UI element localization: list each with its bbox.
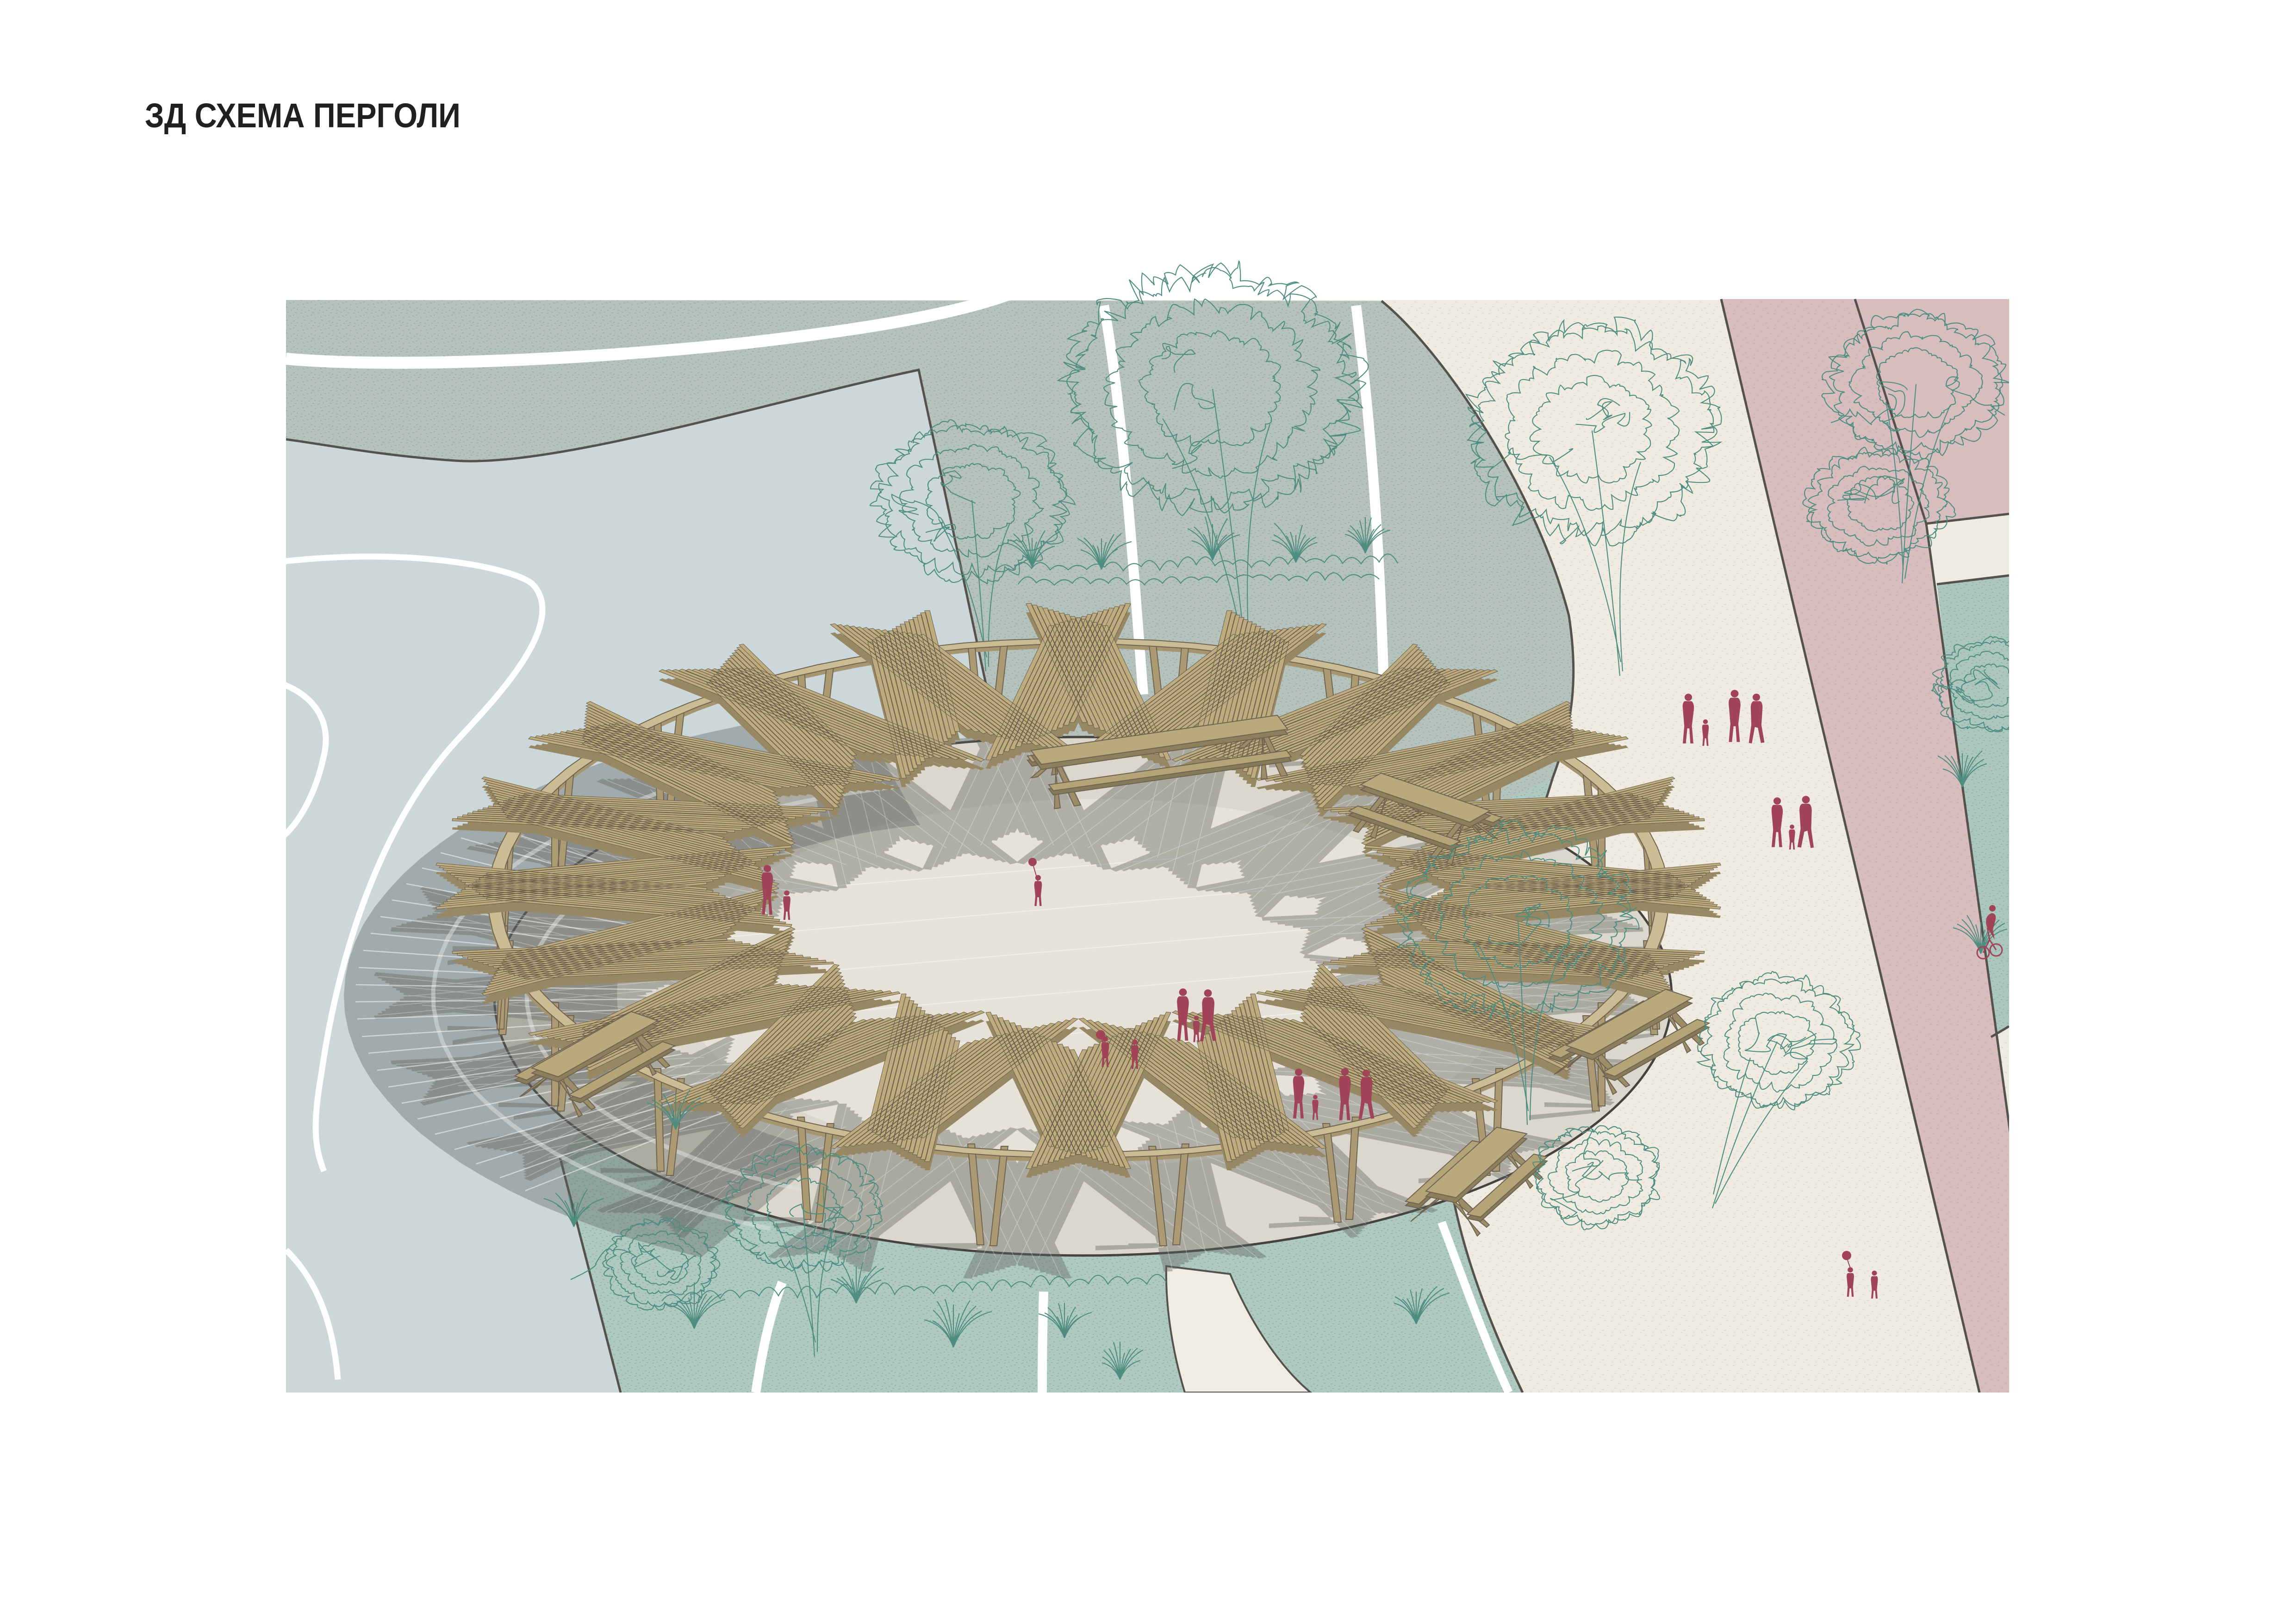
svg-text:ЗД СХЕМА ПЕРГОЛИ: ЗД СХЕМА ПЕРГОЛИ <box>145 96 460 135</box>
